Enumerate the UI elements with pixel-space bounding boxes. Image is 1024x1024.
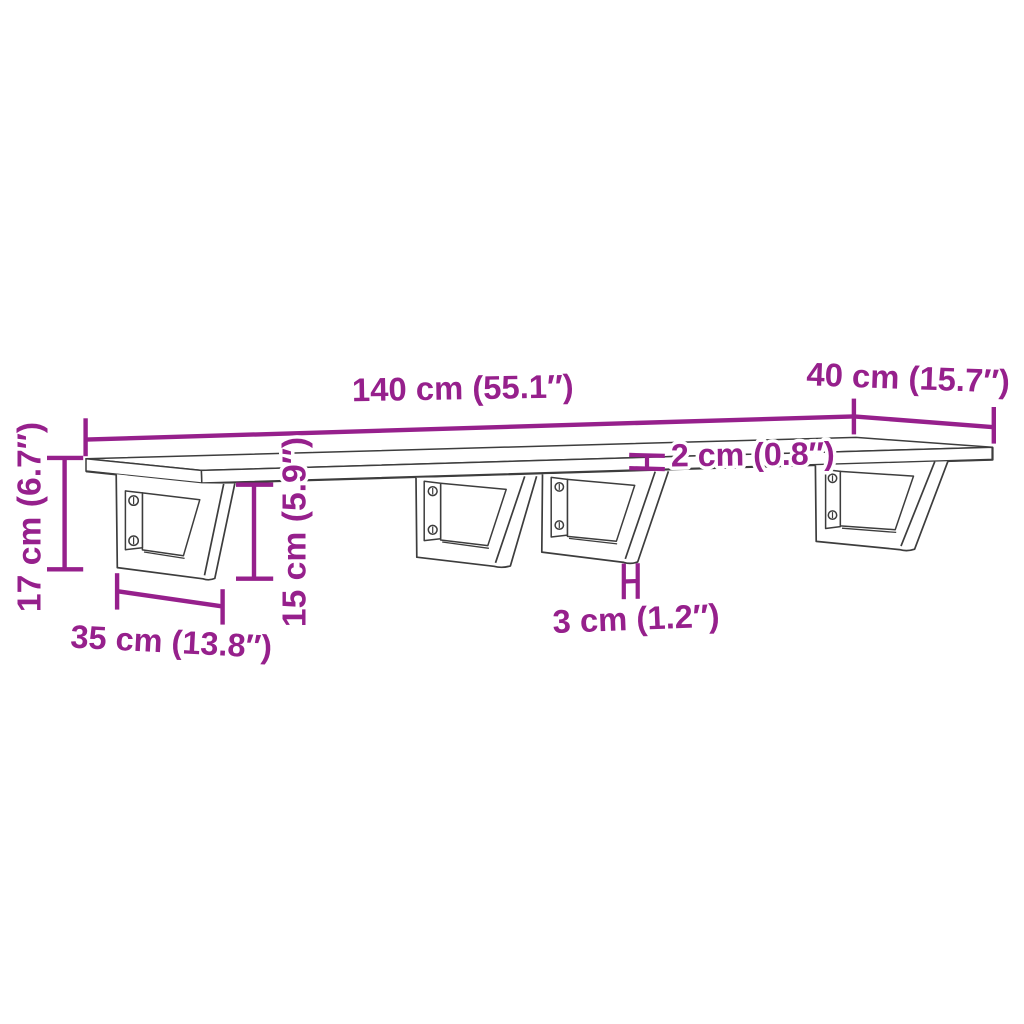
svg-text:17 cm (6.7″): 17 cm (6.7″) bbox=[11, 422, 49, 612]
svg-text:3 cm (1.2″): 3 cm (1.2″) bbox=[552, 597, 720, 640]
svg-text:140 cm (55.1″): 140 cm (55.1″) bbox=[352, 367, 574, 408]
svg-text:15 cm (5.9″): 15 cm (5.9″) bbox=[276, 437, 314, 627]
svg-text:2 cm (0.8″): 2 cm (0.8″) bbox=[671, 435, 835, 473]
svg-text:40 cm (15.7″): 40 cm (15.7″) bbox=[806, 355, 1011, 399]
